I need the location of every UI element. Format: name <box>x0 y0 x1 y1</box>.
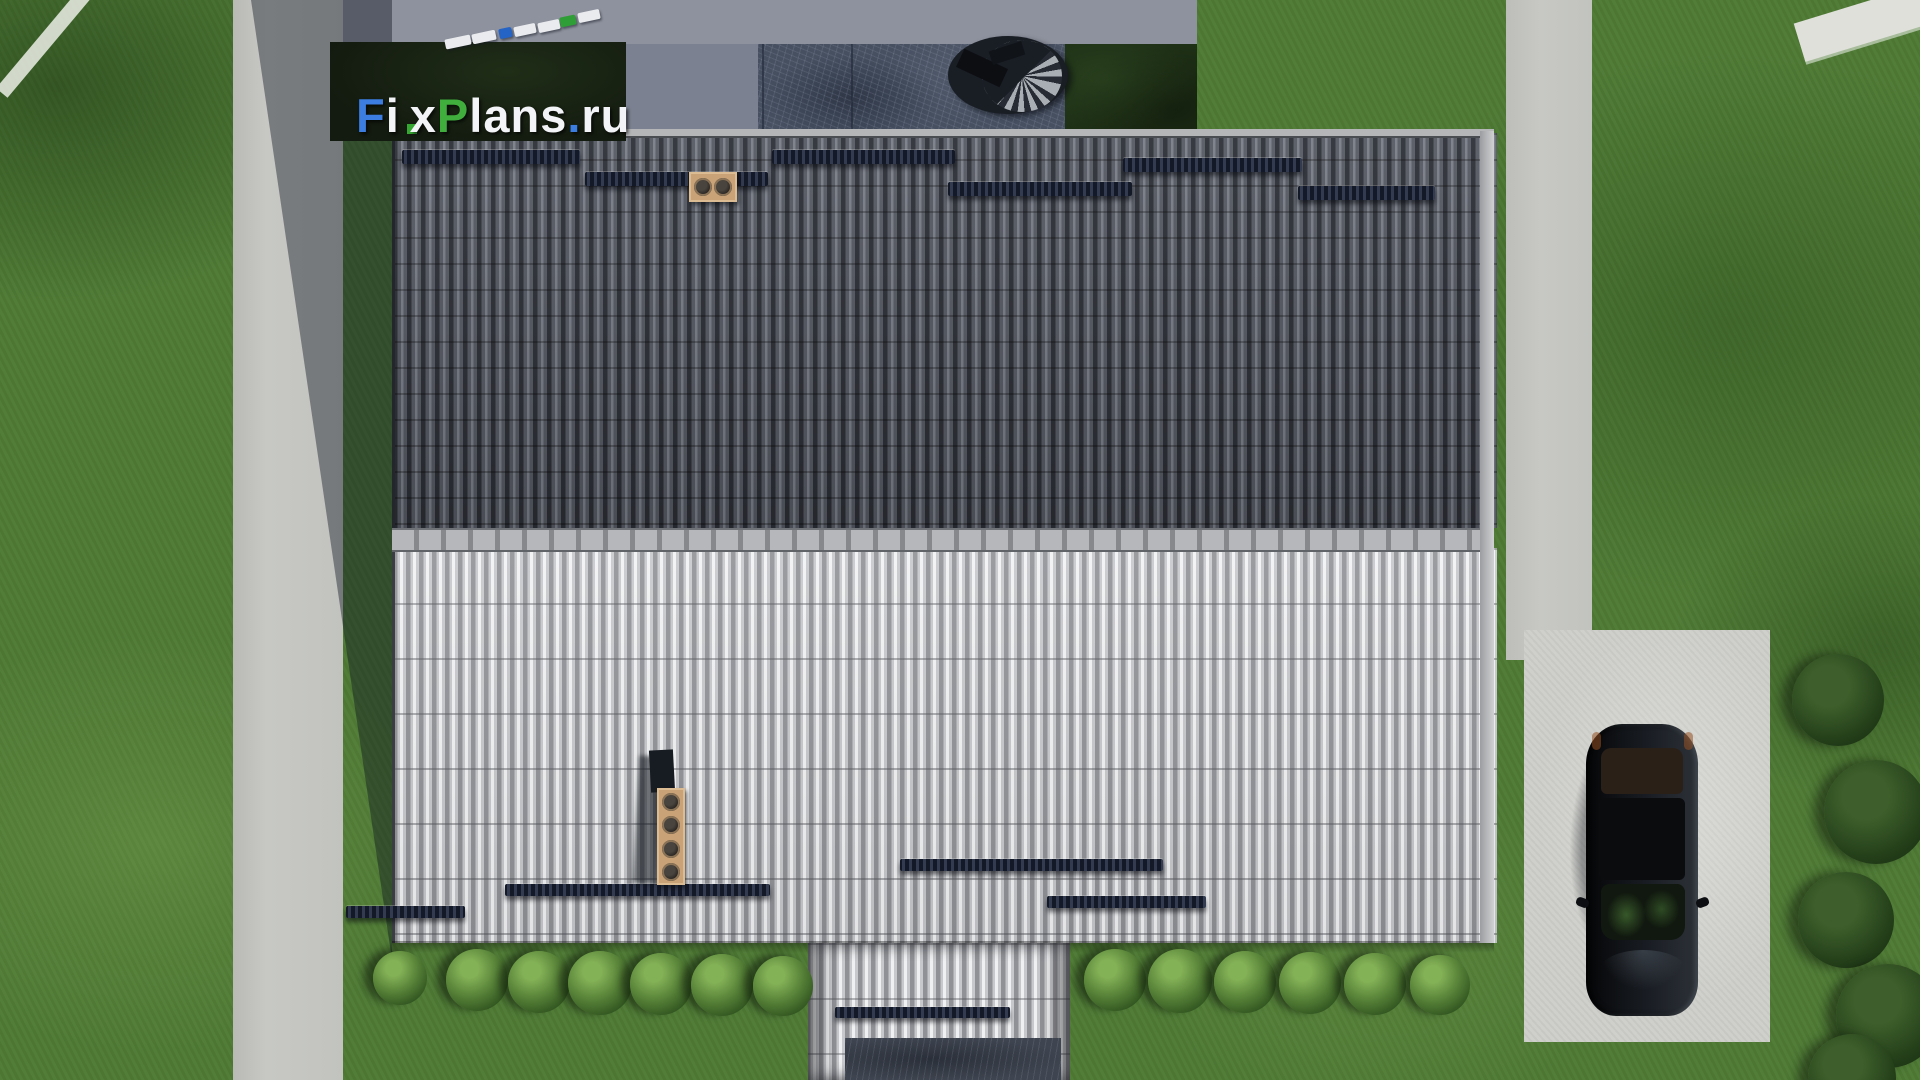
bush <box>1084 949 1146 1011</box>
bush <box>373 951 427 1005</box>
bush <box>446 949 508 1011</box>
watermark-text: FixPlans.ru <box>356 92 630 139</box>
spiral-staircase <box>948 36 1068 114</box>
vent-circle <box>662 793 680 811</box>
bush <box>1148 949 1212 1013</box>
edge-tree <box>1824 760 1920 864</box>
watermark-letter: ru <box>581 92 630 139</box>
watermark-panel: FixPlans.ru <box>330 42 626 141</box>
snow-guard <box>772 150 955 164</box>
vent-circle <box>662 840 680 858</box>
edge-tree <box>1792 654 1884 746</box>
snow-guard <box>835 1007 1010 1018</box>
snow-guard <box>1298 186 1435 200</box>
parked-car <box>1540 660 1740 1040</box>
hedge-block <box>1065 44 1197 134</box>
upper-pavement-column <box>620 44 758 136</box>
car-roof-panel <box>1599 798 1685 880</box>
vent-circle <box>662 816 680 834</box>
bush <box>1410 955 1470 1015</box>
watermark-letter: F <box>356 92 386 139</box>
bush <box>508 951 570 1013</box>
vent-circle <box>662 863 680 881</box>
snow-guard <box>900 859 1163 871</box>
bush <box>630 953 692 1015</box>
car-taillight <box>1592 732 1601 750</box>
chimney-cap <box>649 749 675 792</box>
edge-tree <box>1798 872 1894 968</box>
car-windshield <box>1601 884 1685 940</box>
chimney-vent-lower <box>657 788 685 885</box>
watermark-letter: P <box>437 92 469 139</box>
entrance-walkway <box>845 1038 1061 1080</box>
patio-seam <box>762 44 764 134</box>
chimney-vent-top <box>689 172 737 202</box>
watermark-letter: . <box>567 92 581 139</box>
bush <box>1279 952 1341 1014</box>
watermark-letter: i <box>386 92 410 139</box>
roof-right-verge <box>1480 131 1494 943</box>
snow-guard <box>585 172 768 186</box>
vent-circle <box>714 178 732 196</box>
roof-ridge <box>392 528 1494 552</box>
snow-guard <box>1047 896 1206 908</box>
car-rear-window <box>1601 748 1683 794</box>
aerial-house-render: FixPlans.ru <box>0 0 1920 1080</box>
bush <box>691 954 753 1016</box>
car-taillight <box>1684 732 1693 750</box>
snow-guard <box>346 906 465 918</box>
snow-guard <box>1123 158 1302 172</box>
watermark-letter: x <box>410 92 437 139</box>
bush <box>568 951 632 1015</box>
snow-guard <box>948 182 1132 196</box>
bush <box>1344 953 1406 1015</box>
vent-circle <box>694 178 712 196</box>
patio-seam <box>851 44 853 134</box>
bush <box>753 956 813 1016</box>
snow-guard <box>402 150 580 164</box>
right-concrete-path <box>1506 0 1592 660</box>
snow-guard <box>505 884 770 896</box>
car-hood-highlight <box>1600 950 1686 990</box>
bush <box>1214 951 1276 1013</box>
watermark-letter: lans <box>469 92 567 139</box>
